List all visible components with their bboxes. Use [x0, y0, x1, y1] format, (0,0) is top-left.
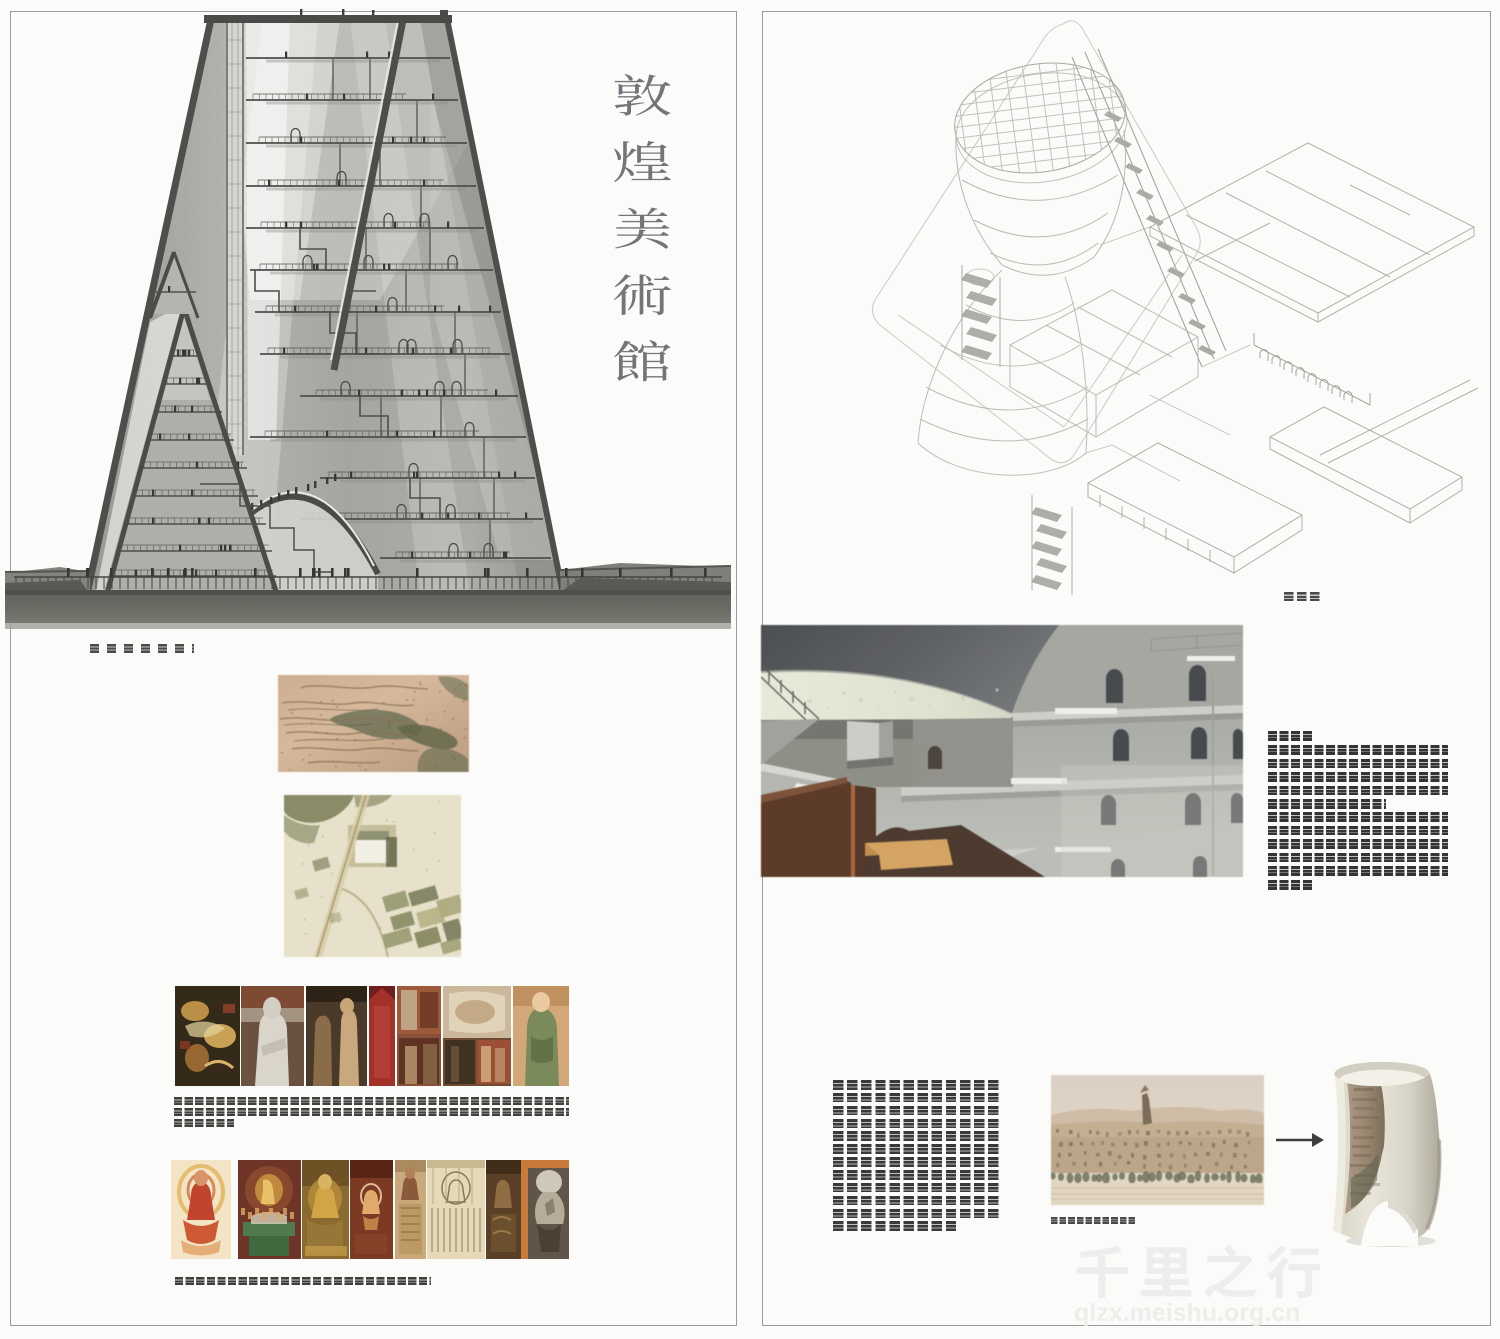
svg-text:qlzx.meishu.org.cn: qlzx.meishu.org.cn: [1074, 1299, 1300, 1327]
